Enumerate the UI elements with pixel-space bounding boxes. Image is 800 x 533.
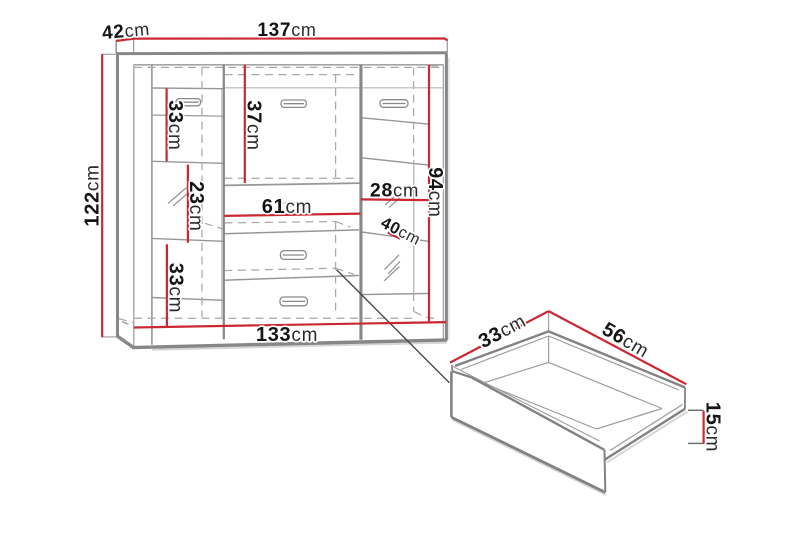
svg-text:37cm: 37cm	[243, 100, 265, 150]
svg-text:61cm: 61cm	[262, 196, 312, 218]
svg-text:94cm: 94cm	[424, 167, 446, 217]
svg-text:28cm: 28cm	[370, 180, 419, 202]
svg-text:15cm: 15cm	[702, 402, 724, 452]
svg-text:133cm: 133cm	[256, 324, 318, 346]
svg-text:33cm: 33cm	[164, 100, 186, 150]
svg-text:23cm: 23cm	[185, 181, 207, 231]
svg-text:122cm: 122cm	[82, 164, 104, 226]
svg-text:33cm: 33cm	[164, 263, 186, 313]
svg-text:137cm: 137cm	[257, 20, 316, 41]
